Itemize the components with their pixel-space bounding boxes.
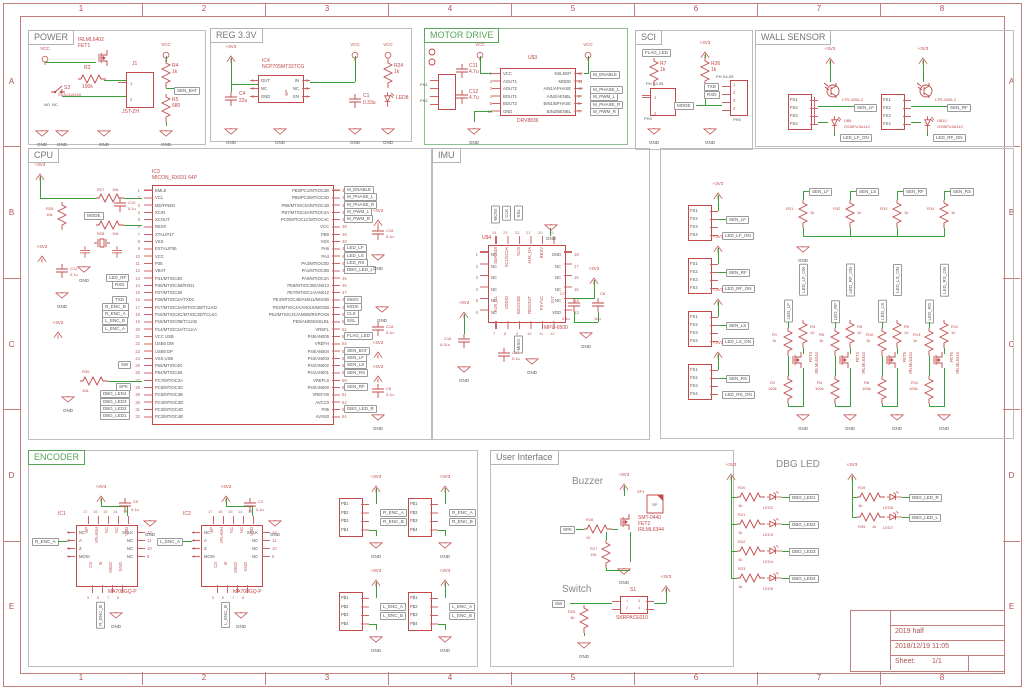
col-label: 2 <box>143 672 266 685</box>
led8-ref: LED8 <box>396 96 409 102</box>
enc-pin-top: VDD <box>124 527 129 536</box>
resistor-icon <box>584 524 612 534</box>
enc-pin-num-top: 17 <box>83 509 87 515</box>
frame-rows-left: ABCDE <box>3 16 20 672</box>
wire <box>944 228 945 236</box>
gnd-symbol: GND <box>932 408 956 431</box>
enc-pin-names-left: NC A Z MOSI <box>204 529 215 561</box>
col-label: 3 <box>266 672 389 685</box>
c18-ref: C18 <box>386 324 393 330</box>
wire <box>835 322 836 328</box>
capacitor-icon <box>80 246 90 258</box>
wire <box>570 603 612 604</box>
s1-pin: 2 <box>626 605 628 611</box>
ir-led-part: OSI5FU3A11C <box>844 124 870 130</box>
wire <box>231 58 232 92</box>
enc-conn-pins: P$1 P$2 P$3 P$4 <box>410 500 417 534</box>
pin-stubs <box>646 598 654 612</box>
wire <box>718 195 719 211</box>
enc-pin-top: VFLASH <box>94 527 99 543</box>
net-tag: DBG_LED1 <box>789 494 819 502</box>
vcc-symbol: VCC <box>33 46 57 70</box>
motor-connector <box>438 74 456 110</box>
wire <box>803 368 804 406</box>
phototransistor-part: LTR-4206-2 <box>842 97 863 103</box>
c15-val: 0.1u <box>386 234 394 240</box>
wire <box>58 541 67 542</box>
title-block-line <box>890 640 1005 641</box>
r27-val: 10k <box>112 187 118 193</box>
wire <box>897 228 898 236</box>
r7-val: 1k <box>660 68 665 74</box>
fs-conn-pins: FS1 FS2 FS3 FS4 <box>690 313 698 345</box>
pulldown-ref: R4 <box>817 380 822 386</box>
wire <box>850 348 851 354</box>
pin-stubs <box>710 314 718 342</box>
drain-res-ref: R9 <box>904 324 909 330</box>
wire <box>897 191 898 200</box>
wire <box>310 82 355 83</box>
enc-pin-num-bottom: 6 <box>222 595 224 601</box>
wire <box>588 56 589 73</box>
enc-pin-num-top: 16 <box>93 509 97 515</box>
j1-ref: J1 <box>132 62 137 68</box>
imu-pin-num-bottom: 10 <box>527 331 531 337</box>
wall-conn-pins: FS1 FS2 FS3 FS4 <box>883 96 891 128</box>
pin-stubs <box>302 77 310 101</box>
resistor-icon <box>80 376 108 386</box>
pin-stubs <box>430 595 438 627</box>
wire <box>101 498 102 506</box>
wire <box>803 236 945 237</box>
net-tag-sen: SEN_LS <box>856 188 879 196</box>
capacitor-icon <box>372 384 384 398</box>
net-tag-mode: MODE <box>84 212 104 220</box>
net-tag-enc-a: R_ENC_A <box>32 538 59 546</box>
c16-val: 0.01u <box>440 342 450 348</box>
pin-stubs <box>903 97 911 125</box>
resistor-ref: R22 <box>738 539 745 545</box>
cap-val: 0.1u <box>131 507 139 513</box>
wire <box>445 488 446 504</box>
wire <box>882 322 883 328</box>
wire <box>624 486 625 496</box>
sp1-ref: SP1 <box>637 489 645 495</box>
net-vtag-led-on: LED_LF_ON <box>799 264 808 296</box>
wire <box>40 176 41 198</box>
led-ref: LED7 <box>883 525 893 531</box>
resistor-icon <box>737 492 765 502</box>
led-icon <box>767 545 782 557</box>
nmos-icon <box>931 352 947 368</box>
wire <box>584 73 589 74</box>
r26-val: 1k <box>711 68 716 74</box>
pin-stubs <box>209 516 259 524</box>
resistor-icon <box>161 60 171 88</box>
net-vtag-ssl: SSL <box>514 206 523 221</box>
imu-pin-bottom: REGOUT <box>527 296 532 314</box>
drv8836-pin-numbers-left: 1 2 3 4 5 13 <box>484 70 492 115</box>
c7-val: 0.1u <box>562 316 570 322</box>
wire <box>606 532 607 540</box>
wire <box>718 272 726 273</box>
ph5-conn-label: PH X4-05 <box>716 74 733 80</box>
wire <box>803 228 804 236</box>
resistor-ref: R32 <box>833 206 840 212</box>
net-tag: SW <box>118 361 131 369</box>
r4-val: 1k <box>172 70 177 76</box>
capacitor-icon <box>458 334 470 348</box>
pin-stubs <box>710 208 718 236</box>
net-tag: DBG_LED2 <box>789 521 819 529</box>
switch-body <box>620 596 648 614</box>
wire <box>696 105 722 106</box>
net-tag-sen-bat: SEN_BAT <box>174 87 200 95</box>
enc-pin-top: VFLASH <box>219 527 224 543</box>
net-vtag-led: LED_RF <box>831 300 840 323</box>
led-ref: LED6 <box>883 505 893 511</box>
j1-pin-numbers: 1 2 <box>130 76 132 108</box>
enc-pin-bottom: B <box>98 562 103 565</box>
net-tag: DBG_LED_L <box>909 514 941 522</box>
pin-stubs <box>361 501 369 533</box>
gnd-symbol: GND <box>885 408 909 431</box>
drain-res-ref: R3 <box>810 324 815 330</box>
col-label: 7 <box>758 672 881 685</box>
net-tag-sen: SEN_RS <box>950 188 974 196</box>
net-tag: M_PWM_R <box>590 108 619 116</box>
led-icon <box>381 92 394 107</box>
s1-pin: 1 <box>626 598 628 604</box>
capacitor-icon <box>592 298 604 312</box>
project-name: 2019 half <box>895 628 924 635</box>
c1-ref: C1 <box>363 94 369 100</box>
wire <box>818 122 828 123</box>
imu-pin-num-bottom: 12 <box>550 331 554 337</box>
wire <box>612 529 618 530</box>
capacitor-icon <box>56 264 68 278</box>
section-title-power: POWER <box>28 30 74 45</box>
nmos-icon <box>618 514 634 530</box>
wire <box>782 551 789 552</box>
nmos-icon <box>884 352 900 368</box>
s3-nc: NC <box>52 102 58 108</box>
title-block-line <box>968 655 969 672</box>
net-tag-sw: SW <box>552 600 565 608</box>
ir-led-icon <box>921 116 934 131</box>
capacitor-icon <box>456 64 468 78</box>
enc-pin-num-bottom: 6 <box>97 595 99 601</box>
gate-res-ref: R6 <box>819 332 824 338</box>
col-label: 2 <box>143 3 266 16</box>
r17-ref: R17 <box>590 546 597 552</box>
col-label: 8 <box>881 3 1003 16</box>
capacitor-icon <box>568 298 580 312</box>
wire <box>929 322 930 328</box>
wire <box>718 248 719 264</box>
p3v3-symbol: +3V3 <box>46 320 70 344</box>
net-tag: L_ENC_B <box>380 612 406 620</box>
nmos-icon <box>790 352 806 368</box>
p3v3-symbol: +3V3 <box>366 340 390 364</box>
pin-stubs <box>642 94 650 112</box>
pin-stubs <box>480 249 488 319</box>
cpu-pin-numbers-left: 1 2 3 4 5 6 7 8 9 10 11 12 13 14 15 16 1… <box>130 187 140 421</box>
enc-pin-top: NC <box>104 527 109 533</box>
ic1-ref: IC1 <box>58 512 66 518</box>
title-block-line <box>890 655 1005 656</box>
net-tag-sen: SEN_RS <box>726 375 750 383</box>
col-label: 8 <box>881 672 1003 685</box>
col-label: 4 <box>389 672 512 685</box>
gnd-symbol: GND <box>539 218 563 241</box>
ic4-pins-left: OUT NC GND <box>261 77 270 101</box>
wire <box>226 498 227 506</box>
resistor-icon <box>845 200 855 228</box>
wire <box>788 406 804 407</box>
gnd-symbol: GND <box>364 536 388 559</box>
s1-part: SKRPACE010 <box>616 616 648 622</box>
enc-pin-top: NC <box>114 527 119 533</box>
resistor-icon <box>857 512 885 522</box>
ic4-part: NCP705MT33TCG <box>262 65 304 71</box>
wire <box>630 532 631 562</box>
capacitor-icon <box>114 198 126 212</box>
net-tag: R_ENC_A <box>380 509 407 517</box>
c17-val: 0.1u <box>512 356 520 362</box>
imu-pin-num-bottom: 8 <box>504 331 506 337</box>
capacitor-icon <box>119 498 131 512</box>
net-tag: M_PHASE_L <box>344 193 377 201</box>
resistor-val: 1k <box>738 530 742 536</box>
enc-pin-num-bottom: 5 <box>212 595 214 601</box>
resistor-val: 1k <box>738 584 742 590</box>
enc-pin-bottom: MISO <box>233 562 238 573</box>
enc-pin-names-left: NC A Z MOSI <box>79 529 90 561</box>
enc-pin-num-bottom: 5 <box>87 595 89 601</box>
capacitor-icon <box>349 94 361 108</box>
enc-pin-top: EP <box>84 527 89 533</box>
enc-pin-bottom: GND <box>118 562 123 571</box>
led-icon <box>767 491 782 503</box>
led-ref: LED4 <box>763 559 773 565</box>
capacitor-icon <box>456 90 468 104</box>
enc-pin-num-bottom: 7 <box>232 595 234 601</box>
wire <box>927 131 928 136</box>
section-title-wall-sensor: WALL SENSOR <box>755 30 831 45</box>
sp-text: SP <box>652 502 657 508</box>
pin-stubs <box>192 529 200 561</box>
pulldown-ref: R11 <box>911 380 918 386</box>
wire <box>902 517 909 518</box>
net-tag: FLAG_LED <box>344 332 373 340</box>
c17-ref: C17 <box>512 350 519 356</box>
r25-ref: R25 <box>568 609 575 615</box>
resistor-val: 1k <box>858 503 862 509</box>
s3-ref: S3 <box>64 86 70 92</box>
net-tag: R_ENC_A <box>449 509 476 517</box>
pin-stubs <box>722 83 730 113</box>
row-label: B <box>3 147 20 278</box>
net-tag: SEN_RF <box>344 383 368 391</box>
resistor-val: 1k <box>904 210 908 216</box>
wire <box>782 524 789 525</box>
gate-res-ref: R13 <box>913 332 920 338</box>
net-tag: R_ENC_B <box>449 518 476 526</box>
r30-ref: R30 <box>82 369 89 375</box>
imu-pin-top: NCS <box>516 247 521 256</box>
r3-ref: R3 <box>84 66 90 72</box>
resistor-icon <box>96 220 124 230</box>
enc-conn-pins: P$1 P$2 P$3 P$4 <box>341 500 348 534</box>
schematic-sheet: 12345678 12345678 ABCDE ABCDE 2019 half … <box>0 0 1024 689</box>
section-title-motor: MOTOR DRIVE <box>424 28 499 43</box>
net-vtag-led-on: LED_RF_ON <box>846 264 855 297</box>
net-tag: DBG_LED4 <box>100 390 130 398</box>
resistor-ref: R19 <box>858 485 865 491</box>
capacitor-icon <box>112 246 122 258</box>
net-tag: LED_LF <box>344 244 367 252</box>
pulldown-val: 100k <box>862 386 871 392</box>
led-ref: LED2 <box>763 505 773 511</box>
imu-pin-bottom: SDO/AD0 <box>516 296 521 314</box>
net-vtag-clk: CLK <box>502 206 511 221</box>
wire <box>438 624 445 625</box>
gnd-symbol: GND <box>462 122 486 145</box>
resistor-icon <box>700 58 710 86</box>
pin-stubs <box>574 70 582 115</box>
wire <box>474 111 475 122</box>
led-icon <box>767 572 782 584</box>
net-tag: L_ENC_A <box>449 603 475 611</box>
col-label: 6 <box>635 3 758 16</box>
wire <box>718 325 726 326</box>
enc-pin-num-top: 16 <box>218 509 222 515</box>
wire <box>654 603 666 604</box>
col-label: 1 <box>20 3 143 16</box>
pulldown-val: 100k <box>768 386 777 392</box>
imu-pin-num-top: 24 <box>492 230 496 236</box>
fs-conn-pins: FS1 FS2 FS3 FS4 <box>690 207 698 239</box>
wire <box>598 312 599 322</box>
wire <box>882 356 883 376</box>
gnd-symbol: GND <box>574 326 598 349</box>
drain-res-val: 10 <box>857 330 861 336</box>
net-tag-mode: MODE <box>674 102 694 110</box>
wire <box>464 314 465 334</box>
resistor-ref: R33 <box>880 206 887 212</box>
c18-val: 0.1u <box>386 330 394 336</box>
net-vtag-mosi: MOSI <box>491 206 500 224</box>
ic2-ref: IC2 <box>183 512 191 518</box>
imu-pin-num-top: 21 <box>526 230 530 236</box>
wire <box>718 354 719 370</box>
gnd-symbol: GND <box>138 514 162 537</box>
wire <box>897 348 898 354</box>
wire <box>850 191 851 200</box>
net-tag-led-on: LED_LF_ON <box>840 134 872 142</box>
resistor-icon <box>78 74 106 84</box>
resistor-icon <box>579 605 589 633</box>
capacitor-icon <box>372 322 384 336</box>
resistor-icon <box>383 60 393 88</box>
gnd-symbol: GND <box>366 248 390 271</box>
pin-stubs <box>361 595 369 627</box>
ph3-ref: PH3 <box>644 116 652 122</box>
gnd-symbol: GND <box>343 122 367 145</box>
gate-res-val: 1k <box>866 338 870 344</box>
net-tag-sen: SEN_LF <box>854 104 877 112</box>
pin-stubs <box>430 501 438 533</box>
resistor-icon <box>845 320 855 348</box>
resistor-icon <box>830 376 840 404</box>
wire <box>40 198 96 199</box>
r16-ref: R16 <box>586 517 593 523</box>
resistor-ref: R35 <box>858 524 865 530</box>
cap-val: 0.1u <box>256 507 264 513</box>
pulldown-ref: R8 <box>864 380 869 386</box>
drv8836-pins-right: NSLEEP MODE AIN1/APHASE AIN2/AENBL BIN1/… <box>518 70 571 115</box>
net-tag: SSL <box>344 317 359 325</box>
pin-stubs <box>118 79 126 97</box>
section-title-sci: SCI <box>635 30 662 45</box>
cpu-pin-names-right: PB3/PC1/MTIOC2B PB5/PC3/MTIOC2D PB6/MTIO… <box>212 187 329 421</box>
wire <box>574 322 598 323</box>
col-label: 7 <box>758 3 881 16</box>
wire <box>897 368 898 406</box>
section-title-reg: REG 3.3V <box>210 28 263 43</box>
title-block-line <box>890 625 1005 626</box>
fs-conn-pins: FS1 FS2 FS3 FS4 <box>690 366 698 398</box>
cap-ref: C2 <box>258 499 263 505</box>
section-title-imu: IMU <box>432 148 461 163</box>
net-vtag-led: LED_LF <box>784 300 793 323</box>
net-tag: DBG_LED3 <box>789 548 819 556</box>
imu-pin-top: AUX_DA <box>527 247 532 264</box>
enc-pin-top: NC <box>229 527 234 533</box>
wire <box>718 378 726 379</box>
wire <box>923 60 924 82</box>
pin-stubs <box>144 187 152 421</box>
wire <box>782 497 789 498</box>
s1-ref: S1 <box>630 588 636 594</box>
resistor-ref: R21 <box>738 512 745 518</box>
pin-stubs <box>492 70 500 115</box>
col-label: 1 <box>20 672 143 685</box>
ir-led-ref: U$10 <box>937 118 947 124</box>
enc-pin-num-bottom: 7 <box>107 595 109 601</box>
dbg-led-heading: DBG LED <box>776 459 820 470</box>
net-tag-led-on: LED_RF_ON <box>933 134 966 142</box>
motor-icon <box>428 58 436 66</box>
pin-stubs <box>332 187 340 421</box>
pin-stubs <box>612 598 620 612</box>
net-tag-sen: SEN_RF <box>726 269 750 277</box>
p3v3-symbol: +3V3 <box>30 244 54 268</box>
pin-stubs <box>710 367 718 395</box>
r5-val: 680 <box>172 104 180 110</box>
s1-pin: 3 <box>638 598 640 604</box>
resistor-icon <box>877 376 887 404</box>
net-vtag-led: LED_RS <box>925 300 934 324</box>
imu-pin-num-bottom: 11 <box>539 331 543 337</box>
resistor-val: 1k <box>872 524 876 530</box>
wire <box>62 96 126 97</box>
wire <box>445 582 446 598</box>
wire <box>45 62 96 63</box>
enc-conn-pins: P$1 P$2 P$3 P$4 <box>410 594 417 628</box>
net-tag: M_PWM_L <box>590 93 618 101</box>
